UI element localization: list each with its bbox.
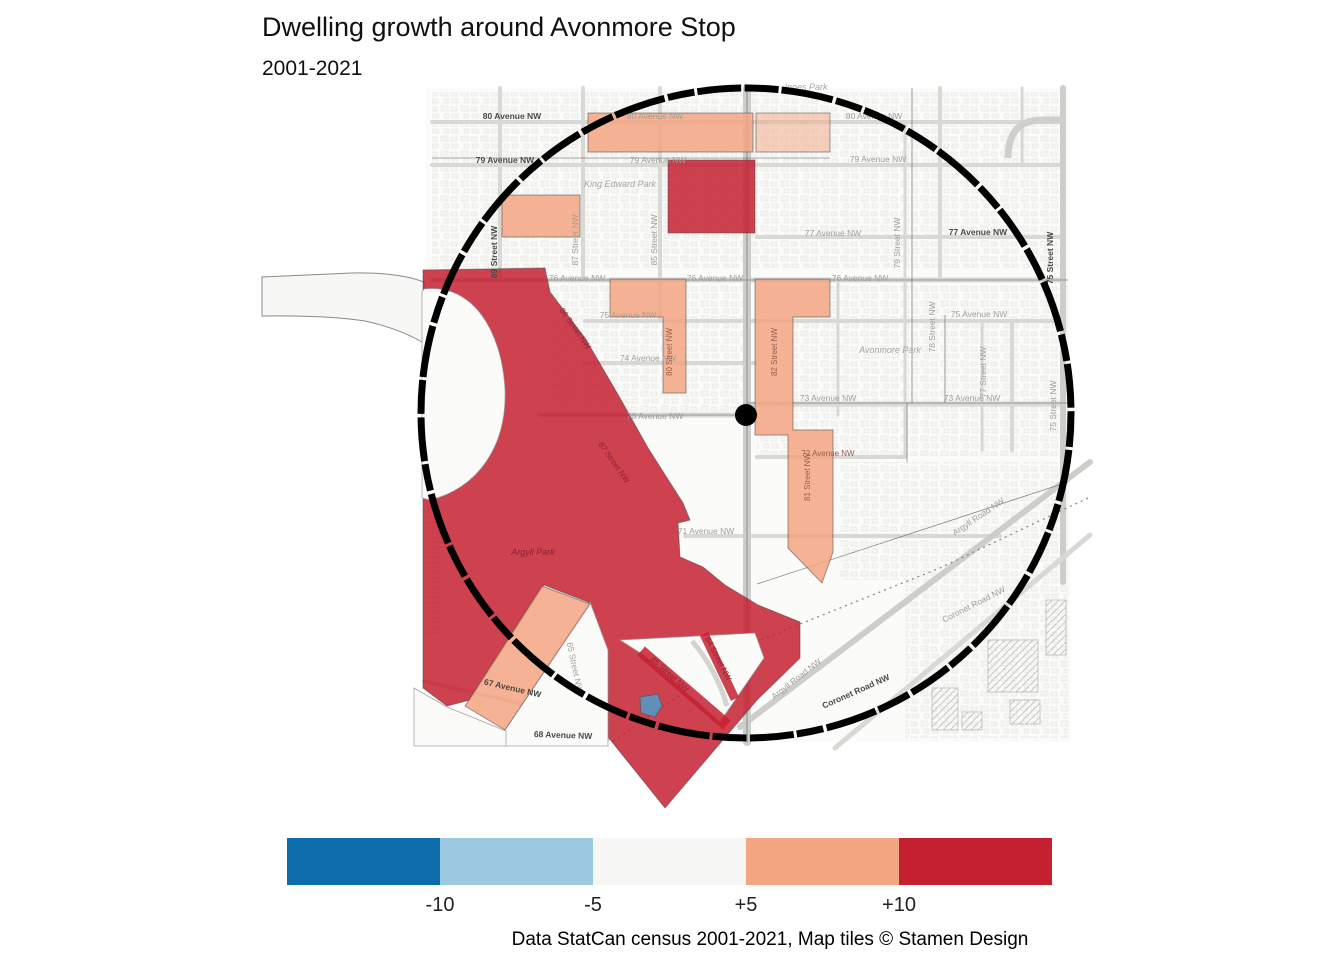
legend-tick-minus5: -5 <box>584 894 602 917</box>
street-label: 71 Avenue NW <box>678 526 735 536</box>
region-king-edward-west <box>502 195 580 237</box>
street-label: 75 Street NW <box>1045 231 1055 284</box>
street-label: 82 Street NW <box>770 328 779 376</box>
street-label: 75 Avenue NW <box>951 309 1008 319</box>
caption: Data StatCan census 2001-2021, Map tiles… <box>512 929 1029 951</box>
street-label: 85 Street NW <box>649 214 659 265</box>
building-block <box>905 580 1068 738</box>
street-label: 76 Avenue NW <box>832 273 889 283</box>
park-label: Argyll Park <box>510 547 555 557</box>
hatched-building <box>932 688 958 730</box>
street-label: 87 Street NW <box>570 214 580 265</box>
street-label: 89 Street NW <box>489 225 499 278</box>
street-label: 76 Avenue NW <box>687 273 744 283</box>
street-label: 79 Avenue NW <box>850 154 907 164</box>
page-title: Dwelling growth around Avonmore Stop <box>262 12 736 43</box>
street-label: 68 Avenue NW <box>534 729 594 741</box>
legend-swatch-above-plus10 <box>899 838 1052 885</box>
street-label: 79 Street NW <box>892 217 902 268</box>
avonmore-stop-dot <box>735 404 757 426</box>
street-label: 79 Avenue NW <box>630 155 687 165</box>
street-label: 75 Street NW <box>1048 380 1058 431</box>
legend-colorbar <box>287 838 1052 885</box>
street-label: 75 Avenue NW <box>600 310 657 320</box>
street-label: 80 Avenue NW <box>483 111 542 121</box>
page-subtitle: 2001-2021 <box>262 57 362 81</box>
street-label: 73 Avenue NW <box>800 393 857 403</box>
hatched-building <box>1010 700 1040 724</box>
street-label: 80 Avenue NW <box>627 111 684 121</box>
legend-swatch-plus5-to-plus10 <box>746 838 899 885</box>
map-canvas: 80 Avenue NW80 Avenue NW80 Avenue NW79 A… <box>0 0 1344 960</box>
street-label: 77 Street NW <box>978 346 988 397</box>
west-boundary-polygon <box>262 273 424 343</box>
hatched-building <box>988 640 1038 692</box>
region-79ave-red <box>668 160 755 233</box>
street-label: 79 Avenue NW <box>476 155 535 165</box>
region-80ave-band-east <box>756 113 830 152</box>
hatched-building <box>962 712 982 730</box>
legend-tick-minus10: -10 <box>426 894 455 917</box>
park-label: Avonmore Park <box>858 345 921 355</box>
hatched-building <box>1046 600 1066 655</box>
street-label: 77 Avenue NW <box>805 228 862 238</box>
street-label: 77 Avenue NW <box>949 227 1008 237</box>
legend-tick-plus5: +5 <box>735 894 758 917</box>
legend-tick-plus10: +10 <box>882 894 916 917</box>
street-label: 80 Street NW <box>665 328 674 376</box>
legend-swatch-minus10-to-minus5 <box>440 838 593 885</box>
park-label: King Edward Park <box>584 179 657 189</box>
street-label: 76 Avenue NW <box>549 273 606 283</box>
legend-swatch-minus5-to-plus5 <box>593 838 746 885</box>
street-label: 78 Street NW <box>927 301 937 352</box>
street-label: 81 Street NW <box>803 453 812 501</box>
street-label: 73 Avenue NW <box>627 411 684 421</box>
legend-swatch-below-minus10 <box>287 838 440 885</box>
street-label: 73 Avenue NW <box>944 393 1001 403</box>
